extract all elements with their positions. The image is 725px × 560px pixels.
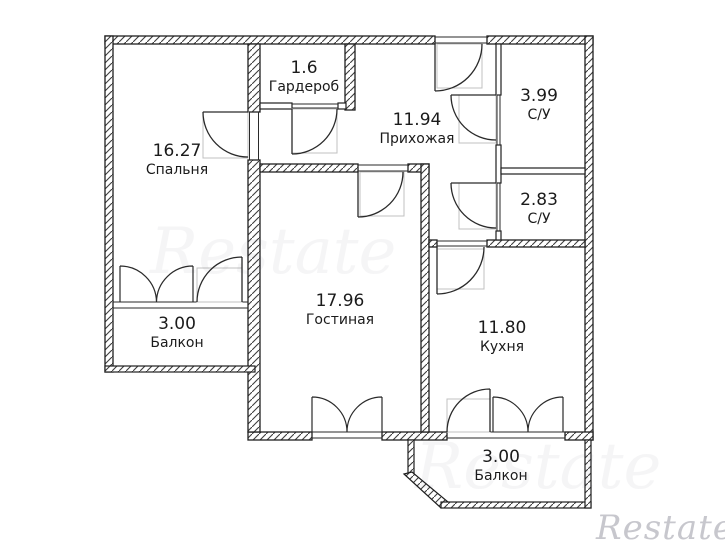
- door-balcony-bedroom: [197, 257, 242, 302]
- room-label-wardrobe: 1.6 Гардероб: [239, 58, 369, 96]
- room-name: Гардероб: [239, 78, 369, 96]
- door-entrance: [435, 44, 482, 91]
- room-label-bedroom: 16.27 Спальня: [112, 141, 242, 179]
- room-area: 16.27: [112, 141, 242, 161]
- room-area: 3.00: [112, 314, 242, 334]
- room-area: 11.94: [352, 110, 482, 130]
- door-balcony-kitchen: [447, 389, 490, 432]
- room-label-bathroom-large: 3.99 С/У: [474, 86, 604, 124]
- room-area: 17.96: [275, 291, 405, 311]
- room-label-hallway: 11.94 Прихожая: [352, 110, 482, 148]
- room-name: Кухня: [437, 338, 567, 356]
- balcony-walls: [105, 366, 591, 508]
- room-name: С/У: [474, 210, 604, 228]
- room-area: 1.6: [239, 58, 369, 78]
- room-label-bathroom-small: 2.83 С/У: [474, 190, 604, 228]
- room-area: 11.80: [437, 318, 567, 338]
- room-name: Спальня: [112, 161, 242, 179]
- room-name: С/У: [474, 106, 604, 124]
- window-kitchen: [493, 397, 563, 432]
- room-area: 3.00: [436, 447, 566, 467]
- room-label-balcony-left: 3.00 Балкон: [112, 314, 242, 352]
- room-label-kitchen: 11.80 Кухня: [437, 318, 567, 356]
- room-name: Прихожая: [352, 130, 482, 148]
- room-label-living-room: 17.96 Гостиная: [275, 291, 405, 329]
- room-name: Гостиная: [275, 311, 405, 329]
- window-bedroom: [120, 266, 193, 302]
- floorplan-page: 16.27 Спальня 1.6 Гардероб 11.94 Прихожа…: [0, 0, 725, 560]
- door-kitchen: [437, 247, 484, 294]
- room-area: 2.83: [474, 190, 604, 210]
- brand-watermark: Restate: [596, 508, 724, 548]
- room-name: Балкон: [436, 467, 566, 485]
- room-label-balcony-bottom: 3.00 Балкон: [436, 447, 566, 485]
- room-name: Балкон: [112, 334, 242, 352]
- window-living-room: [312, 397, 382, 432]
- door-wardrobe: [292, 109, 337, 154]
- door-living-room: [358, 172, 403, 217]
- room-area: 3.99: [474, 86, 604, 106]
